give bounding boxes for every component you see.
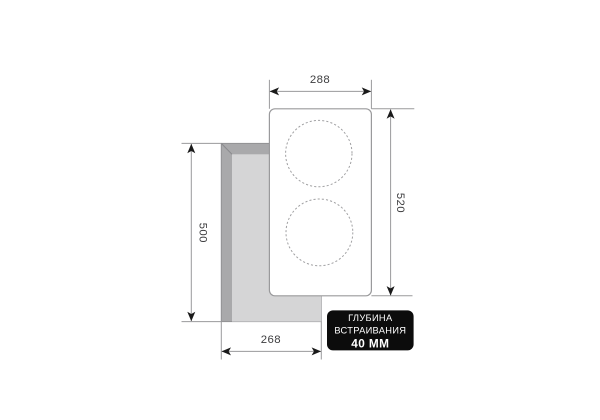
svg-text:ВСТРАИВАНИЯ: ВСТРАИВАНИЯ: [334, 326, 406, 336]
svg-text:500: 500: [196, 223, 208, 243]
svg-text:40 ММ: 40 ММ: [351, 336, 389, 350]
svg-text:288: 288: [310, 74, 330, 86]
svg-text:520: 520: [394, 193, 406, 213]
svg-text:268: 268: [261, 334, 281, 346]
svg-text:ГЛУБИНА: ГЛУБИНА: [348, 313, 393, 323]
